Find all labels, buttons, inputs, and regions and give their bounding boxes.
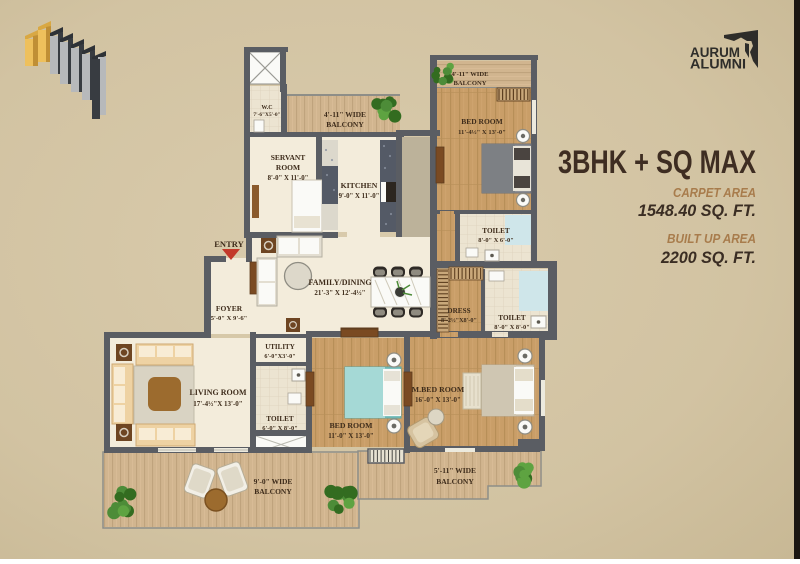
svg-text:BALCONY: BALCONY	[326, 120, 364, 129]
svg-text:FAMILY/DINING: FAMILY/DINING	[308, 278, 371, 287]
svg-text:11'-4½" X 13'-0": 11'-4½" X 13'-0"	[458, 129, 506, 136]
svg-text:7'-6"X5'-0": 7'-6"X5'-0"	[253, 112, 280, 118]
svg-text:ENTRY: ENTRY	[214, 239, 243, 249]
svg-text:6'-0"X3'-0": 6'-0"X3'-0"	[264, 353, 295, 360]
svg-text:BED ROOM: BED ROOM	[329, 421, 373, 430]
svg-text:BALCONY: BALCONY	[436, 477, 474, 486]
svg-text:9'-0" WIDE: 9'-0" WIDE	[254, 477, 293, 486]
svg-text:M.BED ROOM: M.BED ROOM	[412, 385, 465, 394]
svg-text:ALUMNI: ALUMNI	[690, 57, 746, 72]
svg-text:SERVANT: SERVANT	[271, 153, 306, 162]
svg-text:TOILET: TOILET	[498, 314, 526, 322]
svg-text:11'-0" X 13'-0": 11'-0" X 13'-0"	[328, 432, 374, 440]
svg-text:FOYER: FOYER	[216, 304, 243, 313]
svg-text:5'-0" X 9'-6": 5'-0" X 9'-6"	[211, 315, 248, 322]
svg-text:CARPET AREA: CARPET AREA	[673, 186, 756, 200]
svg-text:TOILET: TOILET	[482, 227, 510, 235]
svg-text:BUILT UP AREA: BUILT UP AREA	[667, 232, 756, 246]
svg-text:W.C: W.C	[261, 105, 272, 111]
svg-text:17'-4½"X 13'-0": 17'-4½"X 13'-0"	[193, 400, 242, 408]
svg-text:21'-3" X 12'-4½": 21'-3" X 12'-4½"	[314, 289, 365, 297]
svg-text:BED ROOM: BED ROOM	[461, 117, 502, 126]
svg-text:KITCHEN: KITCHEN	[341, 181, 378, 190]
svg-text:4'-11" WIDE: 4'-11" WIDE	[451, 71, 489, 78]
svg-text:8'-0" X 8'-0": 8'-0" X 8'-0"	[494, 324, 530, 331]
svg-text:8'-2½"X8'-0": 8'-2½"X8'-0"	[441, 317, 477, 324]
svg-text:3BHK + SQ MAX: 3BHK + SQ MAX	[558, 144, 757, 180]
svg-text:2200 SQ. FT.: 2200 SQ. FT.	[660, 249, 756, 267]
svg-text:9'-0" X 11'-0": 9'-0" X 11'-0"	[339, 193, 380, 200]
svg-text:4'-11" WIDE: 4'-11" WIDE	[324, 110, 366, 119]
svg-text:6'-0" X 8'-0": 6'-0" X 8'-0"	[262, 425, 298, 432]
svg-text:5'-11" WIDE: 5'-11" WIDE	[434, 466, 476, 475]
svg-text:8'-0" X 6'-0": 8'-0" X 6'-0"	[478, 237, 514, 244]
svg-text:UTILITY: UTILITY	[265, 343, 295, 351]
svg-text:LIVING ROOM: LIVING ROOM	[189, 388, 247, 397]
svg-text:DRESS: DRESS	[447, 307, 470, 315]
svg-text:1548.40 SQ. FT.: 1548.40 SQ. FT.	[638, 202, 756, 220]
svg-text:16'-0" X 13'-0": 16'-0" X 13'-0"	[415, 396, 461, 404]
svg-text:TOILET: TOILET	[266, 415, 294, 423]
svg-text:BALCONY: BALCONY	[454, 80, 487, 87]
svg-text:BALCONY: BALCONY	[254, 487, 292, 496]
svg-text:8'-0" X 11'-0": 8'-0" X 11'-0"	[268, 175, 309, 182]
svg-text:ROOM: ROOM	[276, 163, 300, 172]
